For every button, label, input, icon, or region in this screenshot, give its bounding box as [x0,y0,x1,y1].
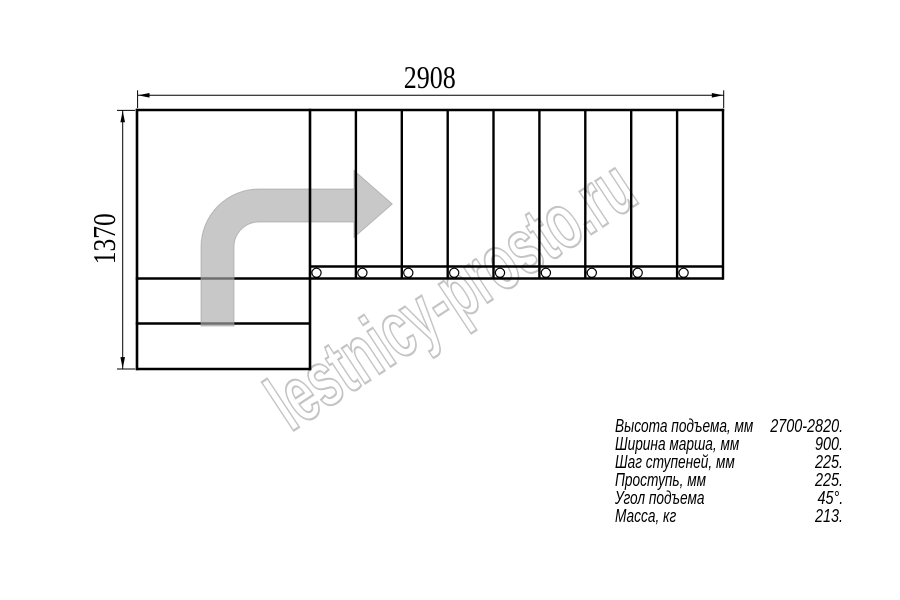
svg-text:1370: 1370 [87,213,122,264]
svg-text:2908: 2908 [404,60,456,95]
